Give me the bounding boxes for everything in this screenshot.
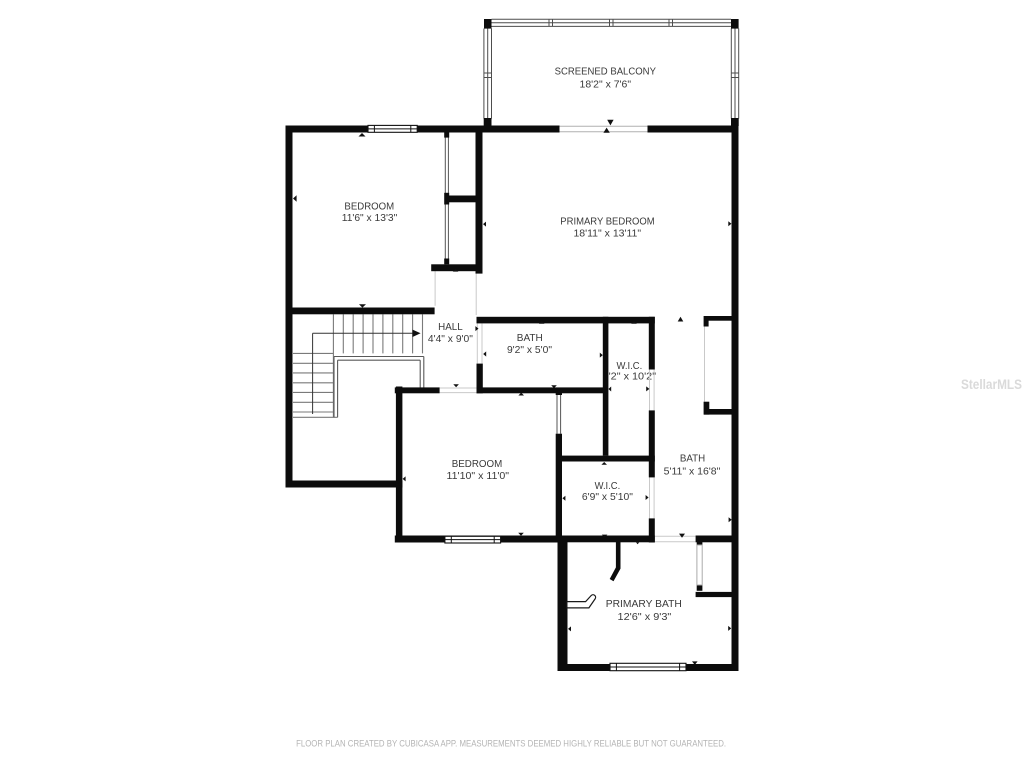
svg-text:9'2" x 5'0": 9'2" x 5'0" xyxy=(507,344,552,356)
svg-text:4'4" x 9'0": 4'4" x 9'0" xyxy=(428,333,473,345)
svg-text:BATH: BATH xyxy=(680,453,705,465)
svg-text:12'6" x 9'3": 12'6" x 9'3" xyxy=(618,611,672,623)
svg-text:18'11" x 13'11": 18'11" x 13'11" xyxy=(573,227,641,239)
svg-text:11'10" x 11'0": 11'10" x 11'0" xyxy=(447,470,510,482)
svg-text:FLOOR PLAN CREATED BY CUBICASA: FLOOR PLAN CREATED BY CUBICASA APP. MEAS… xyxy=(296,739,726,749)
svg-text:PRIMARY BATH: PRIMARY BATH xyxy=(606,598,682,610)
svg-text:5'11" x 16'8": 5'11" x 16'8" xyxy=(664,465,721,477)
svg-text:11'6" x 13'3": 11'6" x 13'3" xyxy=(342,212,398,224)
svg-text:BEDROOM: BEDROOM xyxy=(344,200,394,212)
svg-text:18'2" x 7'6": 18'2" x 7'6" xyxy=(580,79,632,91)
svg-text:BEDROOM: BEDROOM xyxy=(452,458,503,470)
svg-text:StellarMLS: StellarMLS xyxy=(961,377,1022,392)
svg-text:3'2" x 10'2": 3'2" x 10'2" xyxy=(603,371,657,383)
svg-text:BATH: BATH xyxy=(517,332,543,344)
svg-text:SCREENED BALCONY: SCREENED BALCONY xyxy=(555,65,656,77)
svg-text:HALL: HALL xyxy=(438,321,463,333)
svg-text:6'9" x 5'10": 6'9" x 5'10" xyxy=(582,491,633,503)
svg-text:PRIMARY BEDROOM: PRIMARY BEDROOM xyxy=(560,216,654,228)
